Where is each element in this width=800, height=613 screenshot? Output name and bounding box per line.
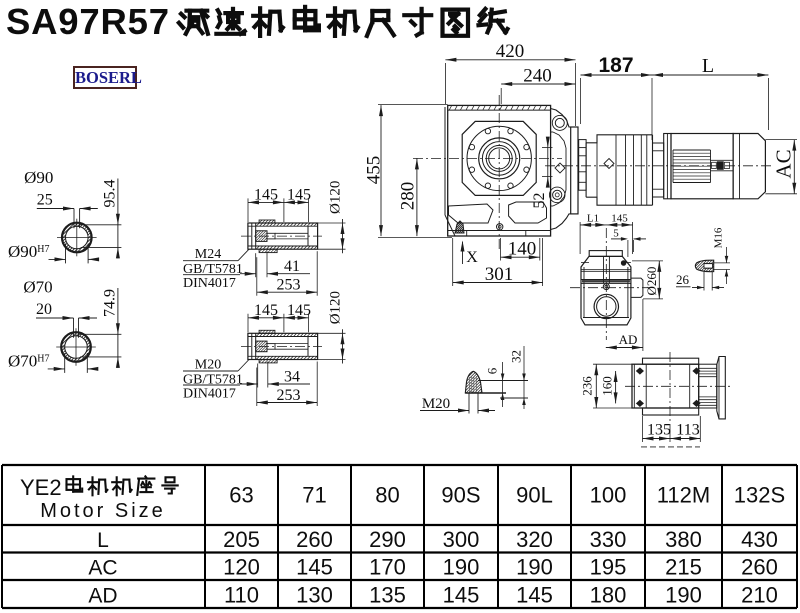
svg-text:195: 195 xyxy=(590,555,627,580)
svg-text:6: 6 xyxy=(485,367,500,374)
svg-text:260: 260 xyxy=(741,555,778,580)
svg-text:DIN4017: DIN4017 xyxy=(183,276,236,291)
svg-text:236: 236 xyxy=(580,376,595,396)
svg-text:Ø90: Ø90 xyxy=(24,168,53,187)
svg-text:X: X xyxy=(466,249,478,266)
svg-text:260: 260 xyxy=(296,527,333,552)
svg-text:M20: M20 xyxy=(195,358,221,373)
svg-text:Ø90H7: Ø90H7 xyxy=(8,242,50,261)
svg-text:Ø70: Ø70 xyxy=(23,278,52,297)
svg-text:YE2: YE2 xyxy=(20,475,62,500)
svg-text:145: 145 xyxy=(443,583,480,608)
svg-text:63: 63 xyxy=(229,483,253,508)
svg-text:20: 20 xyxy=(36,301,52,318)
svg-text:26: 26 xyxy=(676,272,690,287)
svg-text:135: 135 xyxy=(647,422,671,439)
svg-text:187: 187 xyxy=(598,54,633,77)
svg-text:120: 120 xyxy=(223,555,260,580)
svg-text:32: 32 xyxy=(509,350,524,363)
svg-text:190: 190 xyxy=(443,555,480,580)
svg-text:145: 145 xyxy=(287,186,311,203)
svg-text:90L: 90L xyxy=(516,483,553,508)
svg-text:145: 145 xyxy=(516,583,553,608)
svg-text:AC: AC xyxy=(88,557,117,580)
svg-text:95.4: 95.4 xyxy=(101,180,118,208)
svg-text:25: 25 xyxy=(37,192,53,209)
svg-text:145: 145 xyxy=(611,213,628,225)
svg-text:130: 130 xyxy=(296,583,333,608)
svg-text:AD: AD xyxy=(619,332,638,347)
svg-text:110: 110 xyxy=(224,583,259,608)
svg-text:M16: M16 xyxy=(713,227,725,248)
svg-text:145: 145 xyxy=(296,555,333,580)
svg-text:74.9: 74.9 xyxy=(101,289,118,317)
svg-text:Ø120: Ø120 xyxy=(328,181,344,214)
svg-text:145: 145 xyxy=(254,186,278,203)
svg-text:430: 430 xyxy=(741,527,778,552)
svg-text:330: 330 xyxy=(590,527,627,552)
svg-text:320: 320 xyxy=(516,527,553,552)
svg-text:380: 380 xyxy=(665,527,702,552)
svg-text:41: 41 xyxy=(284,258,300,275)
svg-text:420: 420 xyxy=(496,41,525,62)
svg-text:135: 135 xyxy=(369,583,406,608)
svg-text:34: 34 xyxy=(284,369,300,386)
svg-text:Ø70H7: Ø70H7 xyxy=(8,351,50,370)
svg-text:253: 253 xyxy=(277,387,301,404)
svg-text:253: 253 xyxy=(277,277,301,294)
svg-text:L1: L1 xyxy=(587,213,599,225)
svg-text:Motor Size: Motor Size xyxy=(40,500,166,522)
svg-text:113: 113 xyxy=(676,422,699,439)
svg-text:301: 301 xyxy=(485,264,514,285)
svg-text:290: 290 xyxy=(369,527,406,552)
svg-text:DIN4017: DIN4017 xyxy=(183,387,236,402)
svg-text:Ø260: Ø260 xyxy=(644,267,659,296)
svg-text:145: 145 xyxy=(287,302,311,319)
svg-text:90S: 90S xyxy=(441,483,480,508)
svg-text:140: 140 xyxy=(508,239,537,260)
svg-text:160: 160 xyxy=(600,376,615,396)
svg-text:100: 100 xyxy=(590,483,627,508)
svg-text:240: 240 xyxy=(523,66,552,87)
svg-text:215: 215 xyxy=(665,555,702,580)
svg-text:Ø120: Ø120 xyxy=(328,291,344,324)
svg-text:80: 80 xyxy=(375,483,399,508)
svg-text:455: 455 xyxy=(364,156,385,185)
svg-text:L: L xyxy=(97,529,109,552)
svg-text:AD: AD xyxy=(88,585,117,608)
svg-text:132S: 132S xyxy=(734,483,785,508)
svg-text:170: 170 xyxy=(369,555,406,580)
svg-text:280: 280 xyxy=(398,182,419,211)
svg-text:180: 180 xyxy=(590,583,627,608)
svg-text:190: 190 xyxy=(516,555,553,580)
svg-text:M24: M24 xyxy=(195,247,221,262)
svg-text:210: 210 xyxy=(741,583,778,608)
svg-text:145: 145 xyxy=(254,302,278,319)
svg-text:190: 190 xyxy=(665,583,702,608)
svg-text:52: 52 xyxy=(531,193,548,209)
svg-text:5: 5 xyxy=(613,228,619,240)
svg-text:L: L xyxy=(702,55,714,77)
svg-text:112M: 112M xyxy=(657,483,710,508)
svg-text:M20: M20 xyxy=(422,396,450,412)
svg-text:300: 300 xyxy=(443,527,480,552)
svg-text:AC: AC xyxy=(772,149,796,178)
svg-text:205: 205 xyxy=(223,527,260,552)
svg-text:71: 71 xyxy=(302,483,326,508)
